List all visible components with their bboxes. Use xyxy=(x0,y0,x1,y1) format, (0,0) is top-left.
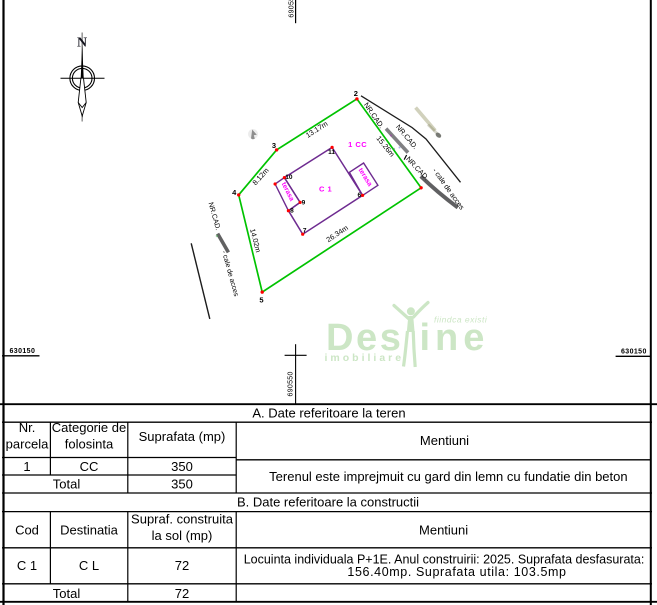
svg-text:72: 72 xyxy=(175,558,189,573)
svg-text:10: 10 xyxy=(285,174,293,181)
svg-text:Cod: Cod xyxy=(15,522,39,537)
svg-text:4: 4 xyxy=(232,188,237,197)
svg-text:la sol (mp): la sol (mp) xyxy=(152,528,213,543)
svg-text:imobiliare: imobiliare xyxy=(325,352,405,364)
svg-text:parcela: parcela xyxy=(6,436,49,451)
svg-text:Total: Total xyxy=(53,477,81,492)
svg-text:NR.CAD.: NR.CAD. xyxy=(394,123,420,151)
svg-text:Nr.: Nr. xyxy=(19,420,36,435)
svg-text:5: 5 xyxy=(259,296,263,305)
svg-text:Supraf. construita: Supraf. construita xyxy=(131,512,234,527)
svg-text:350: 350 xyxy=(171,477,193,492)
svg-text:8: 8 xyxy=(290,208,294,215)
svg-text:C 1: C 1 xyxy=(17,558,37,573)
svg-text:Suprafata (mp): Suprafata (mp) xyxy=(139,429,226,444)
svg-text:fiindca existi: fiindca existi xyxy=(434,315,488,325)
svg-text:Mentiuni: Mentiuni xyxy=(420,433,469,448)
svg-text:1: 1 xyxy=(23,459,30,474)
svg-text:630150: 630150 xyxy=(621,349,647,356)
svg-text:156.40mp. Suprafata utila: 103: 156.40mp. Suprafata utila: 103.5mp xyxy=(347,565,566,579)
svg-text:690550: 690550 xyxy=(288,371,295,396)
svg-text:C 1: C 1 xyxy=(319,184,332,193)
svg-text:C L: C L xyxy=(79,558,99,573)
svg-text:630150: 630150 xyxy=(10,348,36,355)
svg-text:N: N xyxy=(77,36,87,51)
svg-text:NR.CAD.: NR.CAD. xyxy=(362,101,386,130)
svg-text:B. Date referitoare la constru: B. Date referitoare la constructii xyxy=(237,495,419,510)
svg-text:A. Date referitoare la teren: A. Date referitoare la teren xyxy=(252,406,405,421)
svg-text:Categorie de: Categorie de xyxy=(52,420,126,435)
svg-text:8.12m: 8.12m xyxy=(250,166,270,187)
svg-text:NR.CAD. - cale de ac: NR.CAD. - cale de acces xyxy=(207,202,240,298)
svg-text:9: 9 xyxy=(302,199,306,206)
svg-text:NR.CAD.: NR.CAD. xyxy=(404,154,431,182)
svg-text:Total: Total xyxy=(53,586,81,601)
svg-text:350: 350 xyxy=(171,459,193,474)
svg-text:Terenul este imprejmuit cu gar: Terenul este imprejmuit cu gard din lemn… xyxy=(269,469,627,484)
svg-text:690550: 690550 xyxy=(288,0,295,18)
svg-text:6: 6 xyxy=(357,192,361,199)
svg-text:1 CC: 1 CC xyxy=(348,140,367,149)
svg-text:CC: CC xyxy=(80,459,99,474)
svg-text:11: 11 xyxy=(328,149,335,156)
svg-text:terasa: terasa xyxy=(357,167,374,188)
svg-text:Destinatia: Destinatia xyxy=(60,522,119,537)
svg-text:3: 3 xyxy=(272,141,276,150)
svg-text:folosinta: folosinta xyxy=(65,436,114,451)
svg-text:7: 7 xyxy=(303,227,307,234)
svg-text:13.17m: 13.17m xyxy=(304,119,329,140)
svg-text:2: 2 xyxy=(354,89,358,98)
svg-text:26.34m: 26.34m xyxy=(324,223,349,244)
svg-text:Mentiuni: Mentiuni xyxy=(419,522,468,537)
svg-text:72: 72 xyxy=(175,586,189,601)
